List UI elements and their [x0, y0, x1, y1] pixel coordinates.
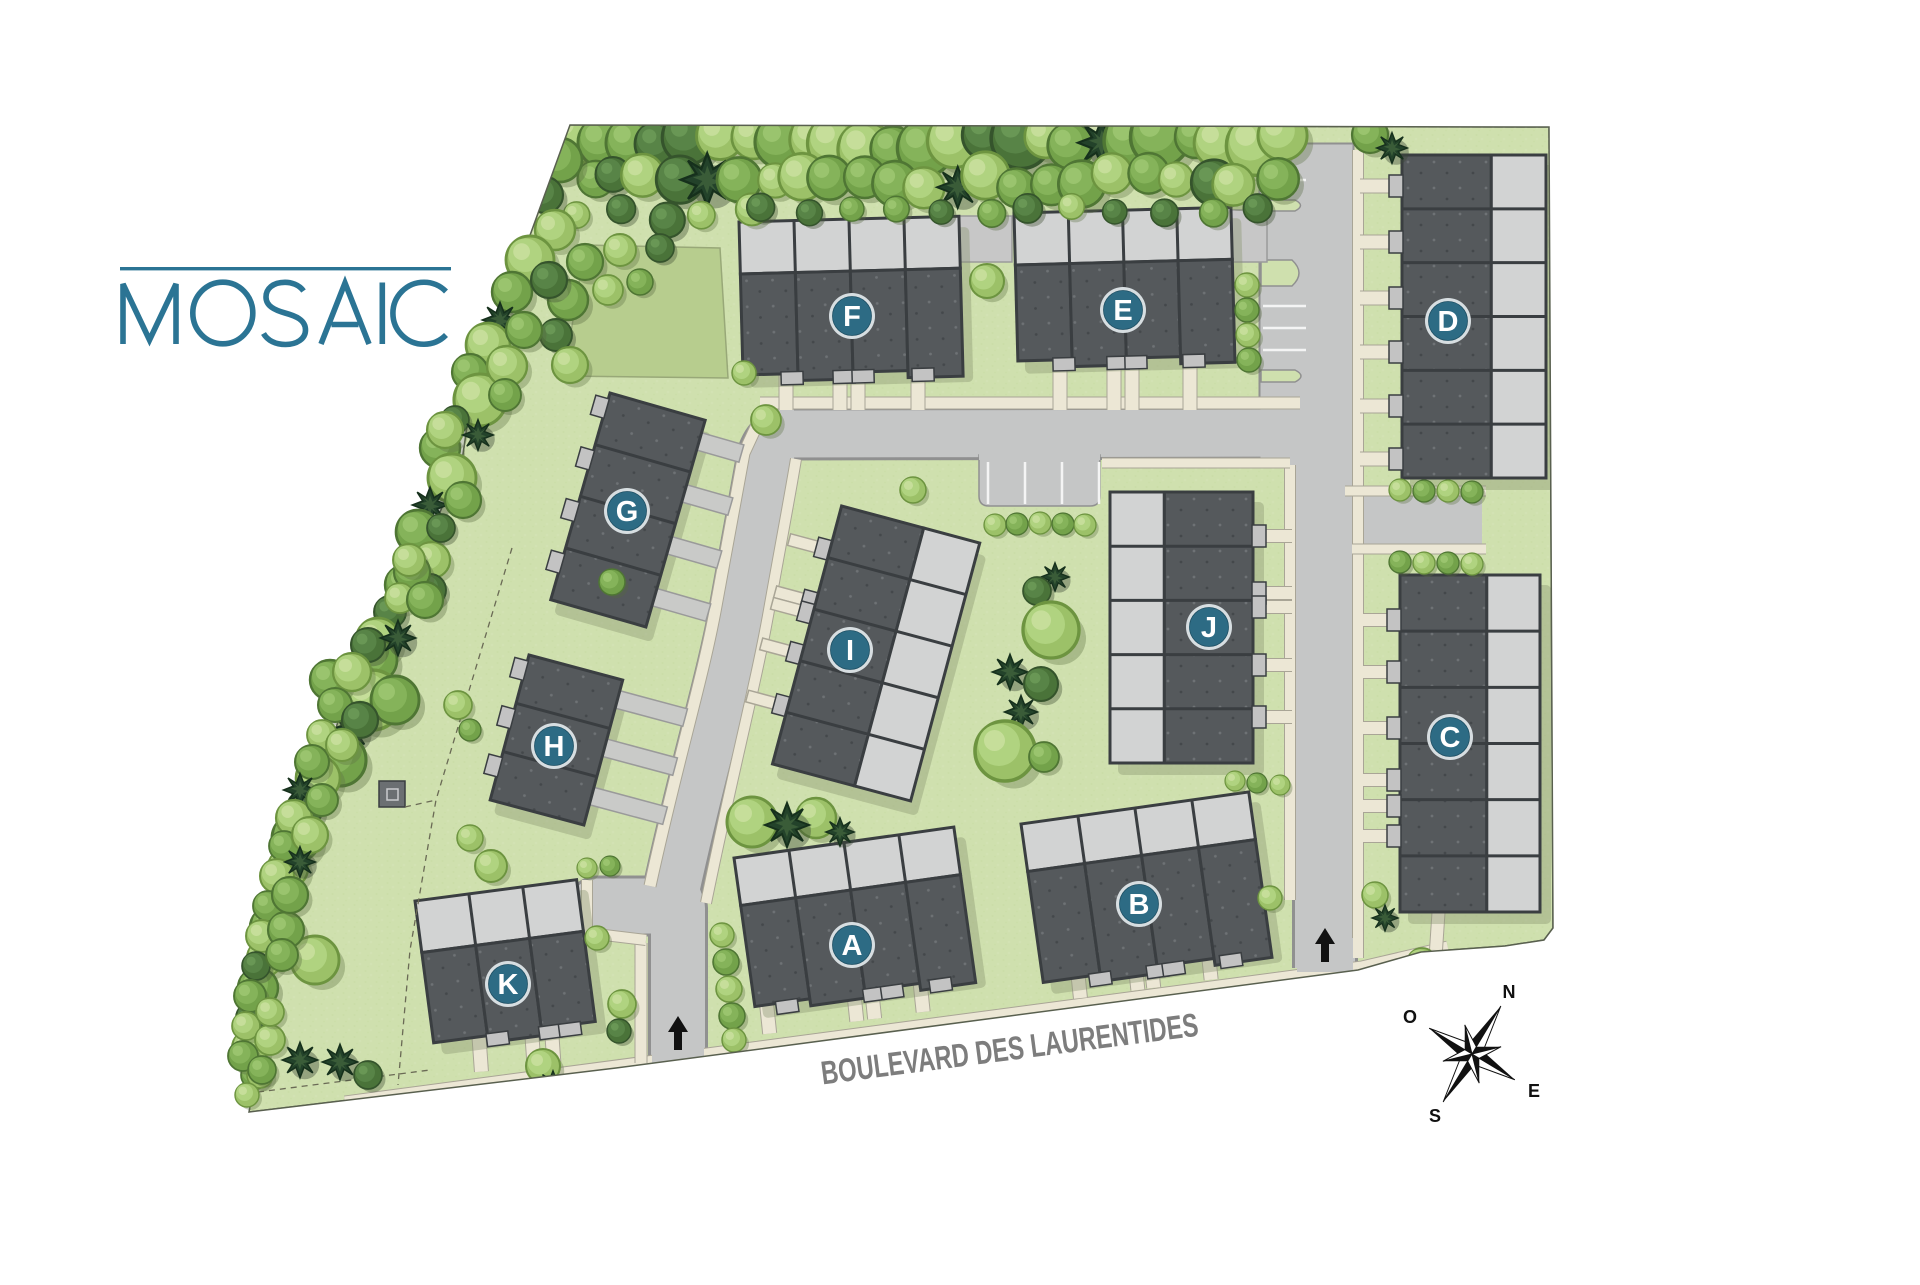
- svg-text:E: E: [1528, 1081, 1540, 1101]
- svg-text:F: F: [843, 301, 861, 333]
- svg-text:J: J: [1201, 612, 1217, 644]
- svg-text:C: C: [1440, 722, 1461, 754]
- svg-text:S: S: [1429, 1106, 1441, 1126]
- svg-text:O: O: [1403, 1007, 1417, 1027]
- svg-text:B: B: [1129, 889, 1150, 921]
- svg-text:I: I: [846, 635, 854, 667]
- svg-text:D: D: [1438, 306, 1459, 338]
- svg-text:G: G: [616, 496, 639, 528]
- svg-text:E: E: [1113, 295, 1132, 327]
- svg-text:A: A: [842, 930, 863, 962]
- svg-text:K: K: [498, 969, 519, 1001]
- svg-text:N: N: [1503, 982, 1516, 1002]
- svg-text:H: H: [544, 731, 565, 763]
